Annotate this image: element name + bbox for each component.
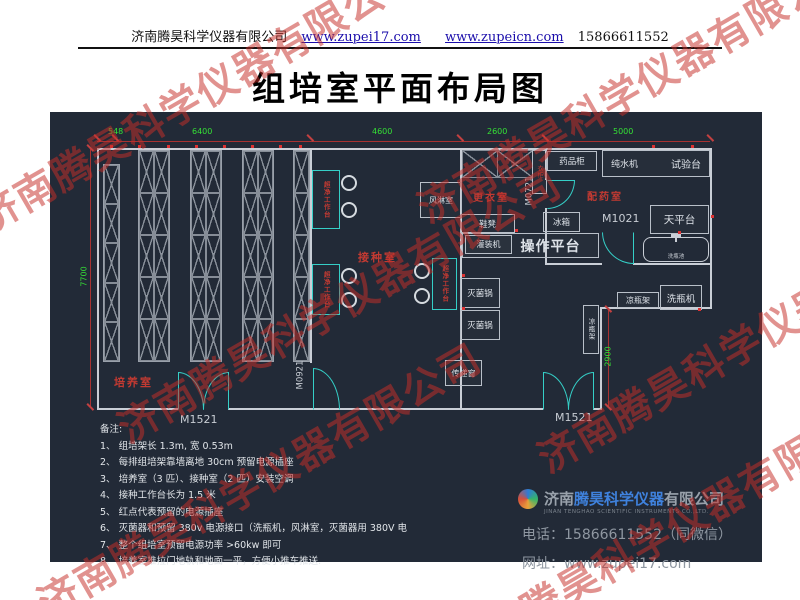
dim-line-top (97, 141, 710, 142)
rack-cell (294, 277, 309, 319)
door-arc (203, 372, 229, 410)
header-phone: 15866611552 (578, 30, 669, 45)
page: 济南腾昊科学仪器有限公司 www.zupei17.com www.zupeicn… (0, 0, 800, 600)
door-arc (602, 232, 634, 264)
rack-cell (294, 235, 309, 277)
dim-548: 548 (108, 127, 123, 136)
clean-bench-label: 超净工作台 (441, 265, 448, 303)
page-title: 组培室平面布局图 (0, 62, 800, 110)
wall-right (710, 148, 712, 309)
rack-cell (154, 235, 169, 277)
culture-rack (293, 150, 310, 362)
stool (341, 268, 357, 284)
door-label-m0721: M0721 (524, 177, 534, 206)
faucet-icon (671, 234, 681, 237)
dim-2900: 2900 (604, 346, 613, 366)
socket-dot (515, 229, 518, 232)
socket-dot (223, 145, 226, 148)
dim-line-left (90, 148, 91, 408)
dim-6400: 6400 (192, 127, 212, 136)
socket-dot (691, 145, 694, 148)
culture-rack (103, 164, 120, 362)
balance-table-box: 天平台 (650, 205, 709, 234)
socket-dot (279, 145, 282, 148)
rack-cell (139, 319, 154, 361)
medicine-cabinet-box: 药品柜 (547, 151, 597, 171)
dim-5000: 5000 (613, 127, 633, 136)
dim-4600: 4600 (372, 127, 392, 136)
rack-cell (104, 322, 119, 361)
floor-plan-panel: 548 6400 4600 2600 5000 7700 2900 培养室 接种… (50, 112, 762, 562)
rack-cell (294, 193, 309, 235)
cool-bottle-rack-box: 凉瓶架 (617, 292, 659, 308)
wall-pharmacy-bottom-b (633, 263, 710, 265)
socket-dot (711, 215, 714, 218)
note-item: 2、 每排组培架靠墙离地 30cm 预留电源插座 (100, 455, 407, 472)
note-item: 7、 整个组培室预留电源功率 >60kw 即可 (100, 538, 407, 555)
wall-bottom-seg1 (97, 408, 178, 410)
clean-bench-2: 超净工作台 (312, 264, 340, 315)
rack-cell (243, 193, 258, 235)
rack-cell (206, 319, 221, 361)
socket-dot (195, 145, 198, 148)
rack-cell (104, 165, 119, 204)
stool (414, 288, 430, 304)
rack-cell (191, 277, 206, 319)
footer-website: 网址：www.zupei17.com (522, 553, 732, 573)
socket-dot (110, 145, 113, 148)
air-shower-box: 风淋室 (420, 182, 462, 218)
shoe-bench-box: 鞋凳 (460, 214, 515, 233)
rack-cell (191, 319, 206, 361)
door-arc (313, 368, 340, 410)
wall-step-vertical (600, 307, 602, 410)
rack-cell (243, 319, 258, 361)
wash-pool: 洗瓶池 (643, 237, 709, 262)
rack-cell (139, 151, 154, 193)
operation-platform-label: 操作平台 (521, 236, 581, 256)
notes-block: 备注: 1、 组培架长 1.3m, 宽 0.53m 2、 每排组培架靠墙离地 3… (100, 422, 407, 571)
filling-machine-box: 灌装机 (465, 235, 512, 254)
rack-cell (294, 319, 309, 361)
header-rule (78, 47, 722, 49)
rack-cell (104, 243, 119, 282)
note-item: 6、 灭菌器和预留 380v 电源接口（洗瓶机，风淋室，灭菌器用 380V 电 (100, 521, 407, 538)
note-item: 8、 培养室推拉门地轨和地面一平，方便小推车推送. (100, 554, 407, 571)
brand-english: JINAN TENGHAO SCIENTIFIC INSTRUMENTS CO.… (544, 509, 732, 515)
door-arc (547, 180, 575, 209)
swirl-logo-icon (518, 489, 538, 509)
wall-bottom-seg2 (228, 408, 543, 410)
wardrobe-label: 衣柜 (535, 165, 544, 179)
pass-window-box: 传递窗 (445, 360, 482, 386)
rack-cell (206, 277, 221, 319)
rack-cell (104, 283, 119, 322)
rack-cell (139, 193, 154, 235)
footer-logo-block: 济南腾昊科学仪器有限公司 JINAN TENGHAO SCIENTIFIC IN… (518, 488, 732, 573)
culture-rack (138, 150, 170, 362)
note-item: 3、 培养室（3 匹）、接种室（2 匹）安装空调 (100, 472, 407, 489)
locker-xbox (462, 150, 498, 178)
footer-phone: 电话：15866611552（同微信） (522, 524, 732, 544)
brand-row: 济南腾昊科学仪器有限公司 (518, 488, 732, 509)
rack-cell (206, 193, 221, 235)
brand-core: 腾昊科学仪器 (574, 490, 664, 508)
wall-left (97, 148, 99, 410)
note-item: 5、 红点代表预留的电源插座 (100, 505, 407, 522)
test-bench-label: 试验台 (671, 156, 701, 171)
rack-cell (139, 235, 154, 277)
culture-rack (190, 150, 222, 362)
sterilizer-box-1: 灭菌锅 (460, 278, 500, 308)
header-company: 济南腾昊科学仪器有限公司 (131, 30, 287, 45)
room-label-culture: 培养室 (114, 374, 153, 390)
rack-cell (243, 235, 258, 277)
stool (341, 292, 357, 308)
door-arc (543, 372, 569, 410)
door-arc (568, 372, 594, 410)
room-label-inoculation: 接种室 (358, 249, 397, 265)
header: 济南腾昊科学仪器有限公司 www.zupei17.com www.zupeicn… (0, 26, 800, 45)
header-link-zupei17[interactable]: www.zupei17.com (301, 30, 420, 45)
rack-cell (154, 277, 169, 319)
brand-suffix: 有限公司 (664, 490, 724, 508)
wash-pool-label: 洗瓶池 (644, 252, 708, 260)
dim-2600: 2600 (487, 127, 507, 136)
sterilizer-box-2: 灭菌锅 (460, 310, 500, 340)
rack-cell (154, 151, 169, 193)
clean-bench-label: 超净工作台 (323, 271, 330, 309)
culture-rack (242, 150, 274, 362)
room-label-pharmacy: 配药室 (587, 188, 623, 203)
note-item: 4、 接种工作台长为 1.5 米 (100, 488, 407, 505)
bottle-washer-box: 洗瓶机 (660, 285, 702, 310)
door-label-m0921: M0921 (295, 361, 305, 390)
rack-cell (191, 193, 206, 235)
notes-title: 备注: (100, 422, 407, 439)
stool (414, 263, 430, 279)
cool-bottle-rack-label: 凉瓶架 (586, 318, 596, 341)
pure-water-label: 纯水机 (611, 157, 638, 170)
socket-dot (698, 308, 701, 311)
rack-cell (258, 151, 273, 193)
fridge-box: 冰箱 (543, 212, 580, 232)
socket-dot (652, 145, 655, 148)
note-item: 1、 组培架长 1.3m, 宽 0.53m (100, 439, 407, 456)
socket-dot (138, 145, 141, 148)
socket-dot (167, 145, 170, 148)
wall-pharmacy-bottom-a (545, 263, 602, 265)
rack-cell (258, 319, 273, 361)
rack-cell (191, 235, 206, 277)
rack-cell (258, 277, 273, 319)
header-link-zupeicn[interactable]: www.zupeicn.com (445, 30, 564, 45)
socket-dot (299, 145, 302, 148)
rack-cell (294, 151, 309, 193)
socket-dot (251, 145, 254, 148)
rack-cell (154, 193, 169, 235)
stool (341, 202, 357, 218)
rack-cell (206, 235, 221, 277)
brand-prefix: 济南 (544, 490, 574, 508)
rack-cell (243, 151, 258, 193)
dim-7700: 7700 (80, 266, 89, 286)
clean-bench-3: 超净工作台 (432, 258, 457, 310)
cool-bottle-rack-vertical-box: 凉瓶架 (583, 305, 599, 354)
clean-bench-1: 超净工作台 (312, 170, 340, 229)
rack-cell (191, 151, 206, 193)
door-label-m1521-2: M1521 (555, 411, 593, 424)
socket-dot (462, 274, 465, 277)
socket-dot (462, 307, 465, 310)
top-bench-box: 纯水机 试验台 (602, 150, 710, 177)
locker-xbox (497, 150, 533, 178)
brand-name: 济南腾昊科学仪器有限公司 (544, 488, 724, 509)
rack-cell (258, 193, 273, 235)
rack-cell (104, 204, 119, 243)
rack-cell (243, 277, 258, 319)
rack-cell (258, 235, 273, 277)
door-arc (178, 372, 204, 410)
door-label-m1021: M1021 (602, 212, 640, 225)
stool (341, 175, 357, 191)
rack-cell (154, 319, 169, 361)
socket-dot (678, 231, 681, 234)
clean-bench-label: 超净工作台 (323, 181, 330, 219)
rack-cell (139, 277, 154, 319)
room-label-changing: 更衣室 (473, 189, 509, 204)
rack-cell (206, 151, 221, 193)
